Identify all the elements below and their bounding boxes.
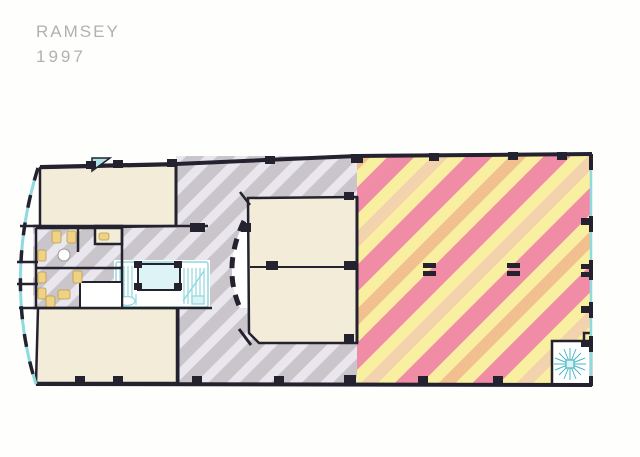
stall-circle [58,249,70,261]
column-block [344,261,356,270]
floor-plan-page: RAMSEY 1997 [0,0,640,457]
column-block [266,261,278,270]
closet [80,282,122,308]
spiral-center [566,360,574,368]
northwest-office [40,165,176,228]
south-wall [36,384,592,385]
shaft-box [190,223,205,232]
floor-plan-drawing [0,0,640,457]
wall-corner-block [241,223,251,232]
core-door [192,296,204,304]
stair-elevator-core [114,260,210,308]
southwest-office [36,308,177,383]
center-rooms [248,197,357,343]
elevator-shaft [138,264,180,290]
column-block [344,192,354,200]
column-block [344,334,354,343]
